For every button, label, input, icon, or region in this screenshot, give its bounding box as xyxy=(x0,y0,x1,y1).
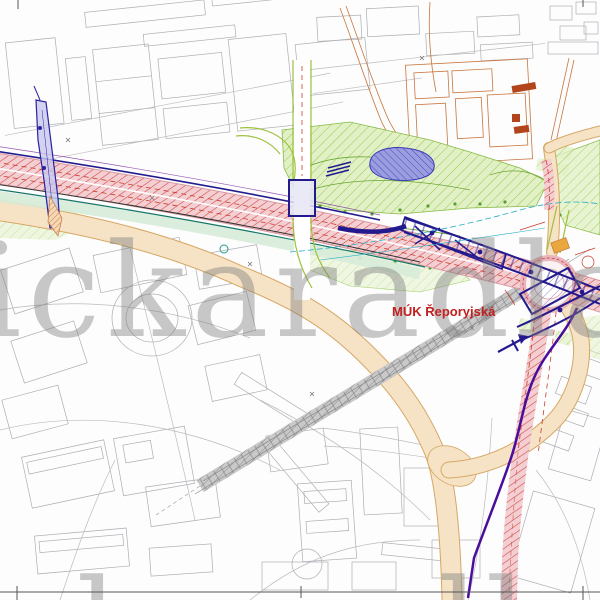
watermark-text: ickaradlah xyxy=(0,215,600,367)
map-canvas: ickaradlah ickaradlah MÚK Řeporyjská xyxy=(0,0,600,600)
interchange-label: MÚK Řeporyjská xyxy=(392,304,496,319)
plan-drawing: ickaradlah ickaradlah MÚK Řeporyjská xyxy=(0,0,600,600)
watermark-text-bottom: ickaradlah xyxy=(0,551,600,600)
